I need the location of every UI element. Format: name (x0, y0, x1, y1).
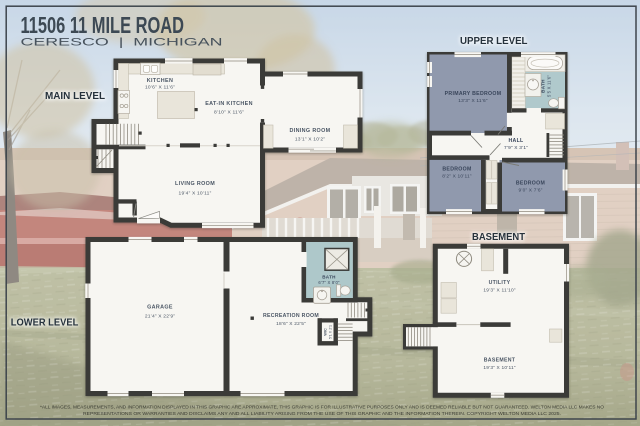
svg-text:7’9” X 3’1”: 7’9” X 3’1” (504, 145, 528, 151)
svg-text:HALL: HALL (508, 138, 524, 144)
svg-text:GARAGE: GARAGE (147, 305, 173, 311)
svg-text:MAIN LEVEL: MAIN LEVEL (45, 91, 105, 102)
svg-text:REPRESENTATIONS OR WARRANTIES: REPRESENTATIONS OR WARRANTIES AND DISCLA… (83, 411, 561, 417)
svg-text:*ALL IMAGES, MEASUREMENTS, AND: *ALL IMAGES, MEASUREMENTS, AND INFORMATI… (40, 405, 604, 411)
svg-text:UTILITY: UTILITY (489, 280, 511, 286)
svg-text:RECREATION ROOM: RECREATION ROOM (263, 313, 319, 319)
svg-text:BASEMENT: BASEMENT (472, 232, 525, 243)
svg-text:5’1 X 2’1: 5’1 X 2’1 (329, 325, 333, 339)
svg-text:CERESCO | MICHIGAN: CERESCO | MICHIGAN (21, 36, 223, 48)
svg-text:LOWER LEVEL: LOWER LEVEL (11, 318, 79, 329)
svg-text:19’4” X 10’11”: 19’4” X 10’11” (179, 191, 212, 197)
svg-text:13’3” X 11’6”: 13’3” X 11’6” (458, 98, 488, 104)
svg-text:19’3” X 10’11”: 19’3” X 10’11” (483, 365, 516, 371)
svg-text:WIC: WIC (323, 328, 328, 336)
svg-text:UPPER LEVEL: UPPER LEVEL (460, 36, 528, 47)
svg-text:19’3” X 11’10”: 19’3” X 11’10” (483, 288, 516, 294)
svg-text:8’2” X 10’11”: 8’2” X 10’11” (442, 174, 472, 180)
svg-text:10’6” X 11’6”: 10’6” X 11’6” (145, 84, 175, 90)
svg-text:6’7” X 8’0”: 6’7” X 8’0” (318, 280, 340, 285)
svg-text:BATH: BATH (322, 275, 336, 280)
svg-text:5’5 X 11’6”: 5’5 X 11’6” (547, 75, 552, 97)
svg-text:18’6” X 22’5”: 18’6” X 22’5” (276, 321, 306, 327)
svg-text:11506 11 MILE ROAD: 11506 11 MILE ROAD (21, 12, 185, 38)
svg-text:BEDROOM: BEDROOM (442, 167, 471, 173)
svg-text:21’4” X 22’9”: 21’4” X 22’9” (145, 314, 176, 320)
svg-text:BATH: BATH (541, 79, 546, 93)
svg-text:8’10” X 11’6”: 8’10” X 11’6” (214, 109, 244, 115)
svg-text:BASEMENT: BASEMENT (484, 358, 516, 364)
svg-text:LIVING ROOM: LIVING ROOM (175, 181, 215, 187)
svg-text:PRIMARY BEDROOM: PRIMARY BEDROOM (445, 91, 502, 97)
svg-text:DINING ROOM: DINING ROOM (290, 128, 331, 134)
svg-text:BEDROOM: BEDROOM (516, 181, 545, 187)
svg-text:EAT-IN KITCHEN: EAT-IN KITCHEN (205, 101, 253, 107)
svg-text:KITCHEN: KITCHEN (147, 78, 173, 84)
svg-text:9’0” X 7’6”: 9’0” X 7’6” (518, 188, 542, 194)
svg-text:13’1” X 10’2”: 13’1” X 10’2” (295, 136, 326, 142)
